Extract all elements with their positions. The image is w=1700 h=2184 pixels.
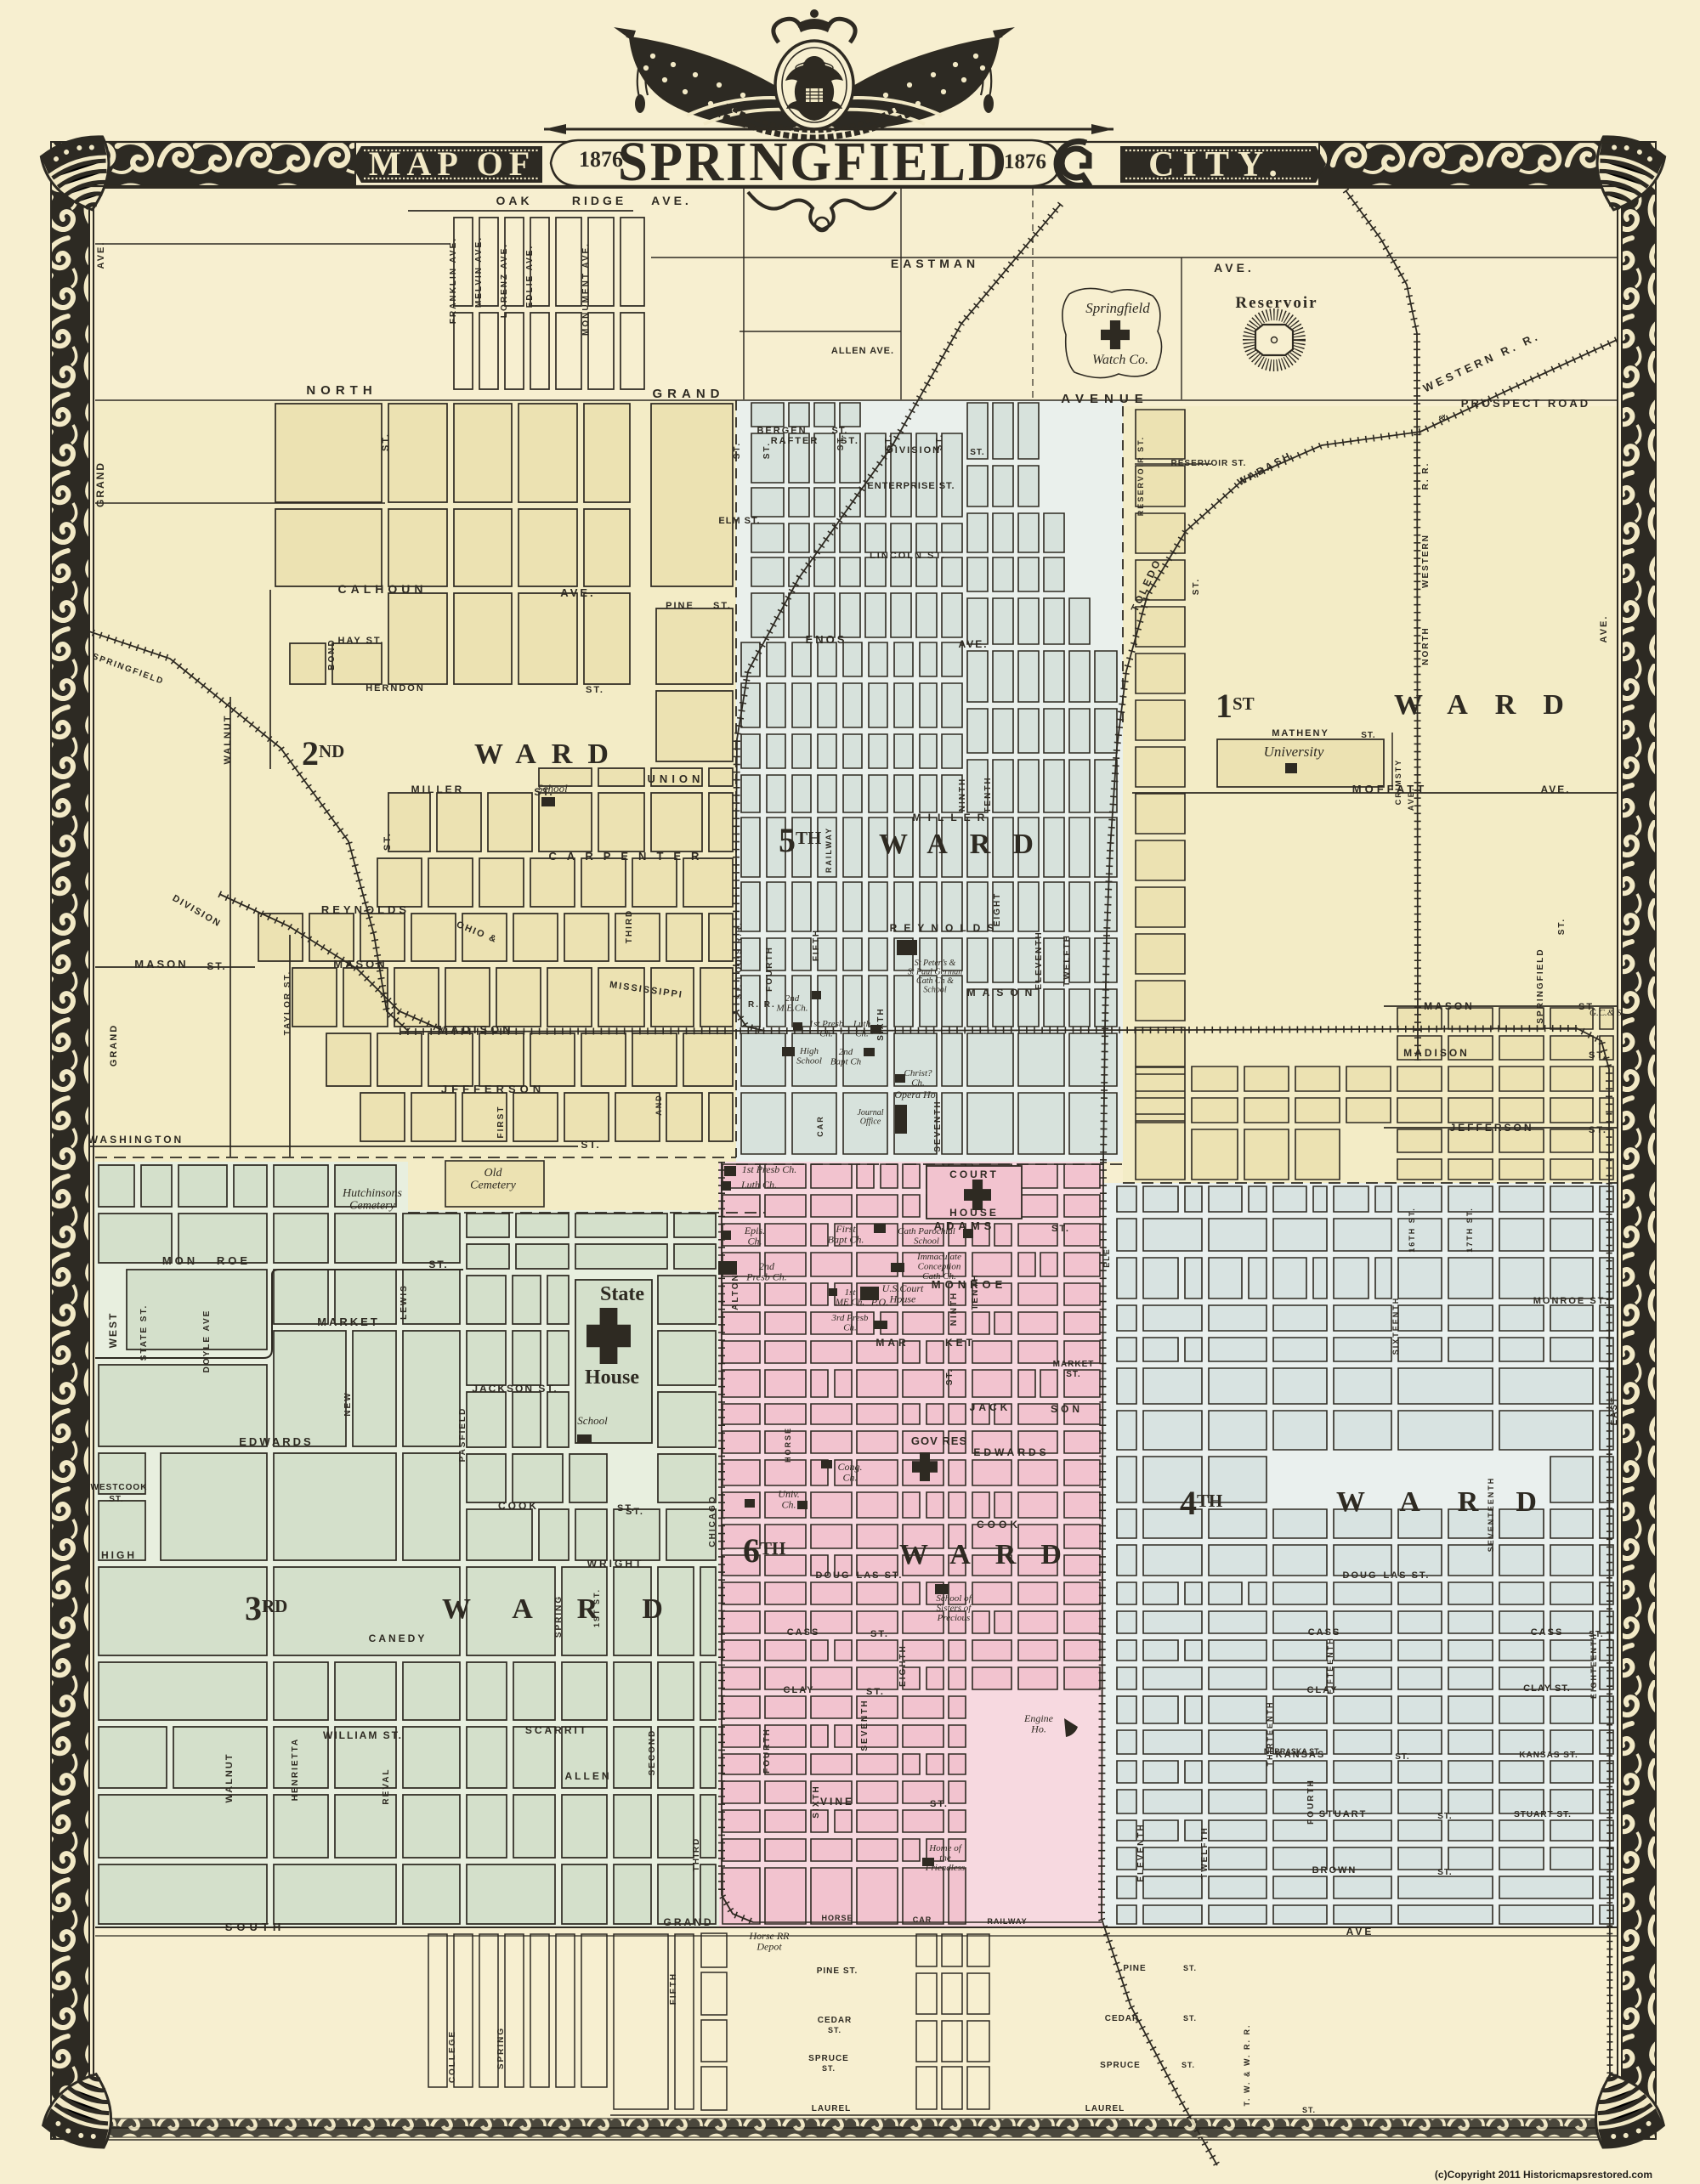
svg-text:ST.: ST. — [1395, 1752, 1409, 1762]
svg-text:HORSE: HORSE — [821, 1914, 853, 1922]
svg-text:GOV RES: GOV RES — [911, 1434, 967, 1447]
svg-text:WARD: WARD — [899, 1539, 1086, 1570]
svg-text:Conception: Conception — [918, 1262, 961, 1272]
svg-text:WRIGHT: WRIGHT — [587, 1558, 644, 1570]
svg-text:HIGH: HIGH — [101, 1549, 137, 1561]
svg-text:CANEDY: CANEDY — [369, 1632, 428, 1644]
svg-text:R. R.: R. R. — [1421, 462, 1431, 490]
svg-text:(c)Copyright 2011 Historicmaps: (c)Copyright 2011 Historicmapsrestored.c… — [1435, 2169, 1652, 2181]
svg-text:SOUTH: SOUTH — [225, 1921, 286, 1933]
svg-text:MILLER: MILLER — [913, 812, 992, 823]
svg-text:PINE ST.: PINE ST. — [817, 1966, 858, 1976]
svg-text:SEVENTH: SEVENTH — [860, 1699, 870, 1751]
svg-text:ST.: ST. — [945, 1368, 955, 1385]
svg-text:TENTH: TENTH — [983, 776, 993, 812]
svg-text:Immaculate: Immaculate — [916, 1252, 961, 1262]
svg-text:BOND: BOND — [327, 638, 337, 670]
svg-text:SON: SON — [1051, 1403, 1083, 1415]
svg-text:Luth: Luth — [853, 1019, 871, 1029]
svg-text:Sisters of: Sisters of — [937, 1604, 973, 1614]
svg-text:ELEVENTH: ELEVENTH — [1034, 931, 1044, 989]
svg-text:LEWIS: LEWIS — [399, 1284, 409, 1320]
svg-text:ENTERPRISE ST.: ENTERPRISE ST. — [867, 481, 955, 491]
svg-text:COOK: COOK — [498, 1500, 539, 1512]
svg-text:FOURTH: FOURTH — [765, 946, 774, 992]
svg-text:SPRINGFIELD: SPRINGFIELD — [1536, 948, 1545, 1023]
svg-text:AVE.: AVE. — [1214, 261, 1255, 274]
svg-text:RIDGE: RIDGE — [572, 194, 626, 207]
svg-text:NORTH: NORTH — [306, 383, 377, 398]
svg-text:ST.: ST. — [713, 601, 732, 611]
svg-text:School of: School of — [936, 1593, 972, 1604]
svg-text:REVAL: REVAL — [382, 1768, 391, 1804]
svg-text:ST.: ST. — [870, 1629, 889, 1639]
svg-text:ALTON: ALTON — [731, 1273, 740, 1310]
svg-text:DOYLE AVE: DOYLE AVE — [202, 1310, 212, 1373]
svg-text:ST.: ST. — [822, 2064, 836, 2073]
svg-text:PINE: PINE — [666, 601, 694, 611]
svg-text:SEVENTH: SEVENTH — [933, 1100, 943, 1151]
svg-text:EDWARDS: EDWARDS — [239, 1435, 313, 1448]
svg-text:JFFFERSON: JFFFERSON — [441, 1083, 545, 1095]
svg-text:AVENUE: AVENUE — [1061, 392, 1148, 406]
svg-text:ST.: ST. — [207, 960, 226, 972]
svg-text:COURT: COURT — [949, 1168, 999, 1180]
svg-text:RAILWAY: RAILWAY — [987, 1917, 1027, 1926]
svg-text:MELVIN AVE.: MELVIN AVE. — [474, 236, 484, 308]
svg-text:1st: 1st — [845, 1287, 857, 1298]
svg-text:ST.: ST. — [381, 433, 391, 451]
svg-text:DOUG: DOUG — [1343, 1570, 1378, 1581]
svg-text:Office: Office — [860, 1117, 881, 1127]
svg-text:Cath Ch.: Cath Ch. — [922, 1271, 956, 1282]
svg-text:STUART: STUART — [1319, 1809, 1368, 1819]
svg-text:WEST: WEST — [107, 1312, 119, 1349]
svg-text:GRAND: GRAND — [653, 387, 725, 401]
svg-text:ST. LOUIS R.R.: ST. LOUIS R.R. — [734, 921, 743, 999]
svg-text:REYNOLDS: REYNOLDS — [321, 903, 410, 916]
svg-text:BROWN: BROWN — [1312, 1865, 1357, 1876]
svg-text:LINCOLN ST.: LINCOLN ST. — [870, 551, 946, 561]
svg-text:CASS: CASS — [1531, 1627, 1564, 1638]
svg-text:WARD: WARD — [1394, 689, 1591, 721]
svg-text:PASFIELD: PASFIELD — [458, 1407, 467, 1463]
svg-text:TAYLOR ST.: TAYLOR ST. — [283, 970, 292, 1036]
svg-text:WILLIAM ST.: WILLIAM ST. — [323, 1729, 403, 1741]
svg-text:ALLEN: ALLEN — [565, 1770, 612, 1782]
svg-text:CAR: CAR — [816, 1115, 824, 1137]
svg-text:ST.: ST. — [1437, 1812, 1452, 1821]
svg-text:NINTH: NINTH — [958, 778, 967, 812]
svg-text:REYNOLDS: REYNOLDS — [890, 922, 1001, 934]
svg-text:ST.: ST. — [866, 1687, 885, 1697]
svg-text:CAR: CAR — [913, 1915, 932, 1924]
svg-text:LAUREL: LAUREL — [812, 2104, 852, 2113]
svg-text:School: School — [537, 782, 568, 795]
svg-text:Cath Parochial: Cath Parochial — [898, 1226, 955, 1236]
svg-text:CARPENTER: CARPENTER — [549, 850, 710, 863]
svg-text:MADISON: MADISON — [1403, 1047, 1470, 1059]
svg-text:ST.: ST. — [1183, 2014, 1197, 2023]
svg-text:1876: 1876 — [1004, 150, 1046, 173]
svg-text:AVE.: AVE. — [96, 241, 106, 269]
svg-text:CASS: CASS — [1308, 1627, 1341, 1638]
svg-text:ST.: ST. — [1437, 1868, 1452, 1877]
svg-text:FRANKLIN AVE.: FRANKLIN AVE. — [449, 237, 458, 324]
svg-text:MOFFATT: MOFFATT — [1352, 783, 1427, 795]
svg-text:St Paul German: St Paul German — [908, 968, 962, 977]
svg-text:University: University — [1264, 744, 1324, 760]
svg-text:VINE: VINE — [820, 1796, 854, 1808]
svg-text:MASON: MASON — [134, 958, 188, 970]
svg-text:ST.: ST. — [836, 433, 846, 450]
svg-text:AVE: AVE — [1346, 1926, 1374, 1938]
svg-text:3rd Presb: 3rd Presb — [831, 1313, 869, 1323]
svg-text:P.O.: P.O. — [870, 1296, 888, 1308]
svg-text:UNION: UNION — [648, 772, 705, 785]
svg-text:ST.: ST. — [626, 1507, 644, 1517]
svg-text:CASS: CASS — [787, 1627, 820, 1638]
svg-text:&: & — [1438, 412, 1448, 420]
svg-text:School: School — [923, 986, 946, 995]
svg-text:Cemetery: Cemetery — [470, 1180, 516, 1192]
svg-text:CRIMSTY: CRIMSTY — [1394, 759, 1402, 806]
svg-text:Watch Co.: Watch Co. — [1092, 353, 1148, 367]
svg-text:STATE ST.: STATE ST. — [139, 1304, 149, 1361]
svg-text:TWELFTH: TWELFTH — [1062, 934, 1072, 987]
svg-text:16TH ST.: 16TH ST. — [1408, 1207, 1416, 1253]
svg-text:State: State — [600, 1283, 644, 1305]
svg-text:FIFTH: FIFTH — [812, 929, 821, 961]
svg-text:FIFTEENTH: FIFTEENTH — [1326, 1637, 1334, 1695]
svg-text:EIGHTEENTH: EIGHTEENTH — [1589, 1632, 1598, 1699]
svg-text:SPRING: SPRING — [496, 2027, 506, 2069]
svg-text:ST.: ST. — [109, 1495, 123, 1504]
svg-text:HAY ST.: HAY ST. — [338, 636, 385, 646]
svg-text:Cemetery: Cemetery — [349, 1200, 395, 1213]
svg-text:EDLIE AVE.: EDLIE AVE. — [525, 245, 535, 308]
svg-text:MASON: MASON — [333, 958, 387, 970]
svg-text:ST.: ST. — [762, 442, 772, 459]
svg-text:M.E.Ch.: M.E.Ch. — [776, 1004, 808, 1014]
svg-text:STUART ST.: STUART ST. — [1514, 1810, 1572, 1819]
svg-text:WESTCOOK: WESTCOOK — [91, 1483, 148, 1492]
svg-text:LAS ST.: LAS ST. — [857, 1570, 904, 1581]
svg-text:OAK: OAK — [496, 194, 532, 207]
svg-text:HORSE: HORSE — [784, 1427, 792, 1463]
svg-text:Presb Ch.: Presb Ch. — [745, 1271, 787, 1283]
svg-text:WASHINGTON: WASHINGTON — [88, 1134, 184, 1146]
svg-text:MON: MON — [162, 1254, 198, 1267]
svg-text:JACK: JACK — [970, 1401, 1011, 1413]
svg-text:SEVENTEENTH: SEVENTEENTH — [1487, 1477, 1495, 1553]
svg-text:WESTERN: WESTERN — [1421, 534, 1431, 588]
svg-text:ST.: ST. — [828, 2026, 841, 2034]
svg-text:PINE: PINE — [1123, 1964, 1146, 1973]
svg-text:EDWARDS: EDWARDS — [973, 1446, 1049, 1458]
svg-text:Precious: Precious — [937, 1613, 971, 1623]
svg-text:ELEVENTH: ELEVENTH — [1136, 1823, 1146, 1881]
svg-text:Ch.: Ch. — [747, 1236, 762, 1248]
svg-text:WARD: WARD — [442, 1593, 707, 1625]
svg-text:Old: Old — [484, 1167, 503, 1180]
svg-text:KANSAS ST.: KANSAS ST. — [1519, 1751, 1578, 1760]
svg-text:Springfield: Springfield — [1085, 300, 1150, 316]
svg-text:ST.: ST. — [884, 433, 893, 450]
svg-text:ST.: ST. — [1051, 1224, 1070, 1234]
svg-text:WARD: WARD — [474, 738, 624, 770]
svg-text:ROE: ROE — [217, 1254, 251, 1267]
svg-text:1st Presb: 1st Presb — [809, 1019, 844, 1029]
svg-text:SIXTEENTH: SIXTEENTH — [1391, 1297, 1400, 1355]
svg-text:ELE: ELE — [1102, 1248, 1111, 1268]
svg-text:Home of: Home of — [928, 1843, 963, 1853]
svg-text:KET: KET — [945, 1337, 976, 1349]
svg-text:HERNDON: HERNDON — [365, 683, 425, 693]
svg-text:LAS ST.: LAS ST. — [1384, 1570, 1431, 1581]
svg-text:Ch.: Ch. — [855, 1029, 869, 1039]
svg-text:JACKSON ST.: JACKSON ST. — [472, 1383, 558, 1395]
svg-text:Ch.: Ch. — [843, 1323, 857, 1333]
svg-text:FOURTH: FOURTH — [1306, 1779, 1316, 1825]
svg-text:SIXTH: SIXTH — [812, 1785, 821, 1818]
svg-text:Ch.: Ch. — [819, 1029, 833, 1039]
svg-text:ME Ch.: ME Ch. — [835, 1298, 864, 1308]
svg-text:ST.: ST. — [1557, 918, 1567, 935]
svg-text:GRAND: GRAND — [109, 1024, 119, 1067]
svg-text:ST.: ST. — [1589, 1050, 1607, 1061]
svg-text:1ST ST.: 1ST ST. — [592, 1588, 601, 1627]
svg-text:JEFFERSON: JEFFERSON — [1449, 1122, 1533, 1134]
svg-text:FIRST: FIRST — [496, 1106, 506, 1139]
svg-text:SECOND: SECOND — [648, 1729, 657, 1776]
svg-text:SPRING: SPRING — [554, 1595, 564, 1638]
svg-text:GRAND: GRAND — [94, 461, 106, 507]
svg-text:School: School — [796, 1056, 822, 1067]
svg-text:COOK: COOK — [977, 1519, 1021, 1530]
svg-text:THIRD: THIRD — [692, 1837, 701, 1872]
svg-text:CHICAGO: CHICAGO — [708, 1495, 717, 1547]
svg-text:AVE.: AVE. — [560, 586, 595, 599]
svg-text:AVE.: AVE. — [1599, 615, 1609, 643]
svg-text:AVE.: AVE. — [1407, 787, 1415, 811]
svg-text:NEW: NEW — [343, 1391, 353, 1416]
svg-text:ST.: ST. — [382, 832, 393, 851]
svg-text:ST.: ST. — [733, 442, 742, 459]
svg-text:MARKET: MARKET — [1053, 1360, 1095, 1369]
svg-text:MARKET: MARKET — [317, 1315, 380, 1328]
svg-text:AVE.: AVE. — [1540, 784, 1570, 795]
svg-text:ST.: ST. — [1361, 731, 1375, 740]
svg-text:DOUG: DOUG — [816, 1570, 851, 1581]
svg-text:Bapt Ch: Bapt Ch — [830, 1057, 862, 1067]
svg-text:AVE.: AVE. — [651, 194, 692, 207]
svg-text:CEDAR: CEDAR — [818, 2016, 853, 2025]
svg-text:1876: 1876 — [579, 147, 623, 172]
svg-text:ENOS: ENOS — [806, 633, 847, 646]
svg-text:RAFTER: RAFTER — [771, 436, 819, 446]
svg-text:CITY.: CITY. — [1148, 145, 1286, 184]
svg-text:2nd: 2nd — [785, 993, 800, 1004]
svg-text:Friendless: Friendless — [925, 1863, 965, 1873]
svg-text:SPRUCE: SPRUCE — [808, 2054, 849, 2063]
svg-text:PROSPECT ROAD: PROSPECT ROAD — [1461, 397, 1590, 410]
svg-text:ST.: ST. — [586, 685, 604, 695]
svg-text:R. R.: R. R. — [748, 1000, 776, 1010]
svg-text:RESERVOIR ST.: RESERVOIR ST. — [1136, 436, 1145, 516]
svg-text:Cath Ch &: Cath Ch & — [916, 976, 954, 986]
svg-text:MASON: MASON — [1424, 1000, 1475, 1012]
svg-text:Hutchinsons: Hutchinsons — [342, 1187, 403, 1200]
svg-text:ST.: ST. — [970, 448, 984, 457]
svg-text:EIGHTH: EIGHTH — [898, 1644, 908, 1687]
svg-text:EIGHT: EIGHT — [993, 892, 1002, 927]
svg-text:St Peter’s &: St Peter’s & — [915, 959, 956, 968]
svg-text:Bapt Ch.: Bapt Ch. — [828, 1234, 864, 1246]
svg-text:2nd: 2nd — [839, 1047, 853, 1057]
svg-text:MONUMENT AVE.: MONUMENT AVE. — [581, 242, 591, 336]
svg-text:Christ?: Christ? — [904, 1068, 932, 1078]
svg-text:House: House — [889, 1293, 916, 1305]
svg-text:LORENZ AVE.: LORENZ AVE. — [500, 243, 509, 318]
svg-text:BERGEN: BERGEN — [756, 426, 807, 436]
svg-text:ST.: ST. — [428, 1259, 448, 1270]
svg-text:Ch.: Ch. — [781, 1499, 796, 1511]
svg-text:Reservoir: Reservoir — [1235, 294, 1317, 312]
svg-text:DIVISION: DIVISION — [887, 445, 941, 455]
svg-text:CLAY ST.: CLAY ST. — [1523, 1683, 1571, 1694]
svg-text:Ho.: Ho. — [1030, 1723, 1046, 1735]
svg-text:MADISON: MADISON — [438, 1023, 513, 1036]
svg-text:T. W. & W. R. R.: T. W. & W. R. R. — [1243, 2024, 1251, 2107]
svg-text:WARD: WARD — [879, 829, 1056, 860]
svg-text:ST.: ST. — [930, 1799, 949, 1809]
svg-text:WALNUT: WALNUT — [224, 1752, 235, 1802]
svg-text:AVE.: AVE. — [958, 638, 988, 650]
svg-text:High: High — [799, 1046, 819, 1056]
svg-text:RAILWAY: RAILWAY — [824, 827, 833, 873]
svg-text:17TH ST.: 17TH ST. — [1465, 1207, 1474, 1253]
svg-text:School: School — [914, 1236, 939, 1247]
svg-text:GRAND: GRAND — [664, 1916, 714, 1928]
svg-text:ST.: ST. — [1302, 2106, 1316, 2114]
svg-text:MATHENY: MATHENY — [1272, 728, 1329, 738]
svg-text:ST.: ST. — [581, 1139, 600, 1151]
svg-text:MASON: MASON — [967, 987, 1040, 999]
svg-text:EASTMAN: EASTMAN — [891, 257, 979, 270]
svg-text:ST.: ST. — [1181, 2061, 1195, 2069]
svg-text:the: the — [939, 1853, 951, 1864]
svg-text:MILLER: MILLER — [411, 784, 465, 795]
svg-text:ST.: ST. — [1192, 578, 1201, 595]
svg-text:Opera Ho.: Opera Ho. — [894, 1089, 938, 1100]
svg-text:NORTH: NORTH — [1421, 626, 1431, 665]
svg-text:ST.: ST. — [1183, 1964, 1197, 1972]
svg-text:ELM ST.: ELM ST. — [718, 516, 760, 526]
svg-text:Ch.: Ch. — [842, 1472, 857, 1484]
svg-text:COLLEGE: COLLEGE — [448, 2030, 457, 2083]
svg-text:FIFTH: FIFTH — [669, 1972, 678, 2005]
svg-text:Luth Ch.: Luth Ch. — [740, 1179, 777, 1191]
svg-text:THIRD: THIRD — [625, 909, 634, 944]
svg-text:MAR: MAR — [875, 1337, 909, 1349]
svg-text:School: School — [577, 1414, 608, 1427]
svg-text:FOURTH: FOURTH — [762, 1728, 772, 1774]
svg-text:CEDAR: CEDAR — [1105, 2014, 1140, 2023]
svg-text:Journal: Journal — [857, 1108, 883, 1117]
svg-text:1st Presb Ch.: 1st Presb Ch. — [742, 1163, 797, 1175]
svg-text:House: House — [585, 1366, 639, 1389]
svg-text:CLAY: CLAY — [784, 1685, 815, 1695]
svg-text:WALNUT: WALNUT — [223, 714, 233, 764]
svg-text:LAUREL: LAUREL — [1085, 2104, 1125, 2113]
svg-text:TENTH: TENTH — [971, 1273, 980, 1310]
svg-text:ST.: ST. — [1589, 1125, 1607, 1135]
svg-text:SCARRIT: SCARRIT — [525, 1724, 588, 1736]
svg-text:ALLEN AVE.: ALLEN AVE. — [831, 346, 894, 356]
svg-text:MAP OF: MAP OF — [369, 144, 535, 183]
svg-text:CALHOUN: CALHOUN — [338, 582, 428, 596]
svg-text:SIXTH: SIXTH — [876, 1007, 886, 1040]
svg-text:WARD: WARD — [1336, 1486, 1574, 1518]
svg-text:TWELFTH: TWELFTH — [1200, 1826, 1210, 1879]
svg-text:HOUSE: HOUSE — [949, 1207, 999, 1219]
svg-text:AND: AND — [654, 1094, 663, 1116]
svg-text:SPRUCE: SPRUCE — [1100, 2061, 1141, 2070]
svg-text:ST.: ST. — [935, 433, 944, 450]
svg-text:THIRTEENTH: THIRTEENTH — [1266, 1701, 1274, 1767]
svg-text:Ch.: Ch. — [911, 1078, 925, 1089]
svg-text:HENRIETTA: HENRIETTA — [291, 1738, 300, 1801]
svg-text:MONROE ST.: MONROE ST. — [1533, 1296, 1608, 1306]
svg-text:NINTH: NINTH — [949, 1292, 959, 1327]
svg-text:ST.: ST. — [1066, 1370, 1080, 1379]
svg-text:Depot: Depot — [756, 1941, 782, 1953]
svg-text:RESERVOIR ST.: RESERVOIR ST. — [1171, 459, 1247, 468]
